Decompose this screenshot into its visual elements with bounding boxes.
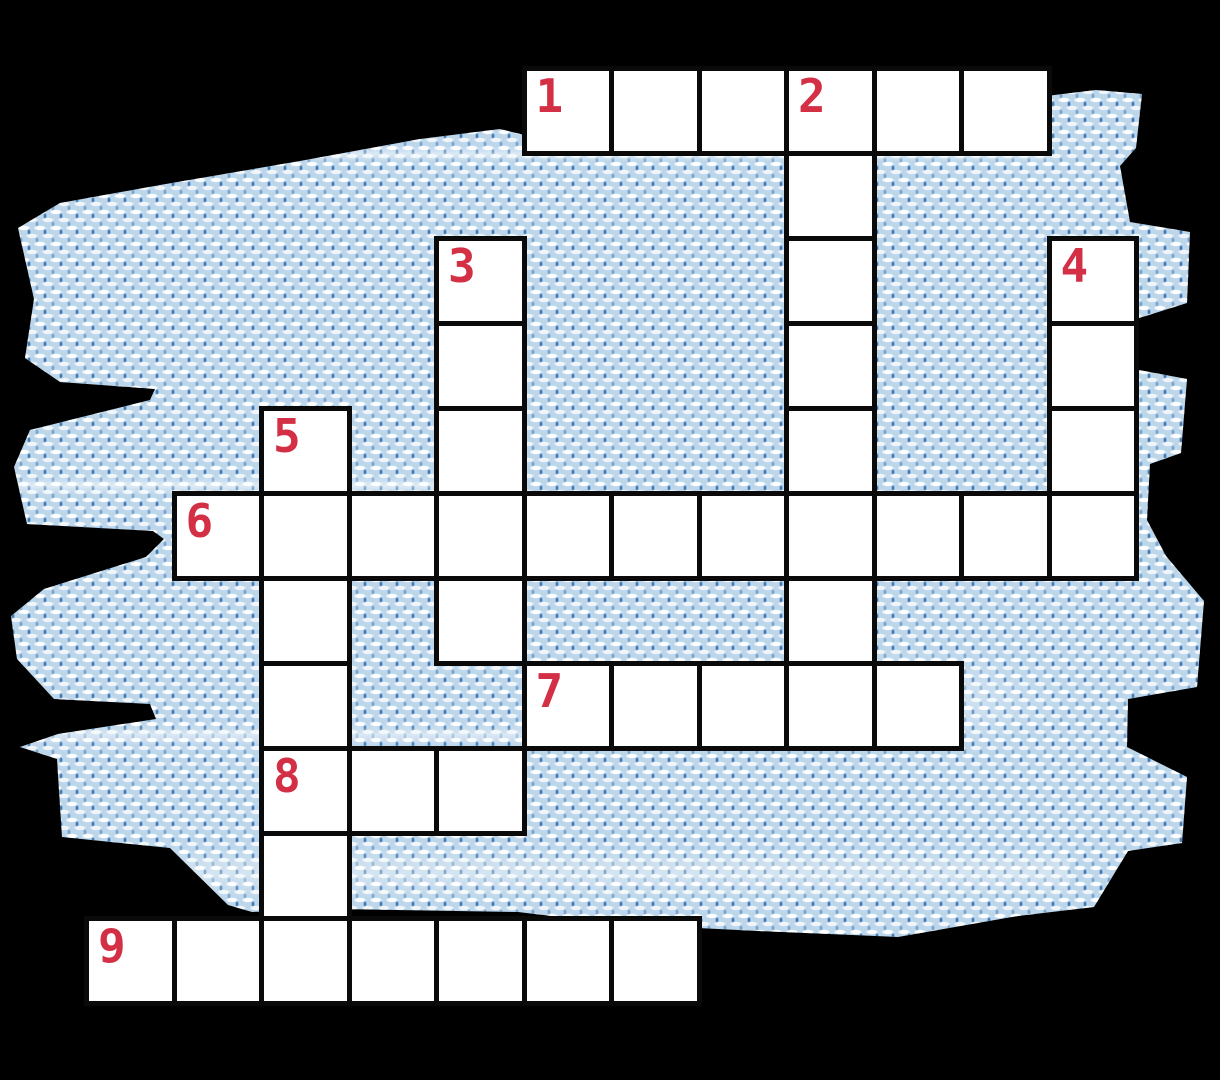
crossword-cell[interactable] <box>434 746 527 836</box>
clue-number-4: 4 <box>1061 245 1089 289</box>
crossword-cell[interactable] <box>872 491 965 581</box>
crossword-cell[interactable] <box>434 321 527 411</box>
crossword-cell[interactable] <box>784 236 877 326</box>
clue-number-1: 1 <box>536 75 564 119</box>
crossword-cell[interactable] <box>522 491 615 581</box>
crossword-cell[interactable] <box>1047 491 1140 581</box>
clue-number-3: 3 <box>448 245 476 289</box>
crossword-cell[interactable] <box>259 916 352 1006</box>
crossword-cell[interactable] <box>697 661 790 751</box>
crossword-cell[interactable] <box>434 576 527 666</box>
crossword-cell[interactable] <box>784 576 877 666</box>
crossword-cell[interactable] <box>609 661 702 751</box>
crossword-cell[interactable] <box>1047 406 1140 496</box>
crossword-cell[interactable] <box>784 491 877 581</box>
crossword-cell[interactable] <box>259 576 352 666</box>
crossword-cell[interactable] <box>259 491 352 581</box>
clue-number-8: 8 <box>273 755 301 799</box>
clue-number-2: 2 <box>798 75 826 119</box>
crossword-cell[interactable] <box>522 916 615 1006</box>
crossword-cell[interactable] <box>697 66 790 156</box>
crossword-cell[interactable] <box>697 491 790 581</box>
crossword-cell[interactable] <box>609 66 702 156</box>
crossword-cell[interactable] <box>172 916 265 1006</box>
crossword-cell[interactable] <box>347 916 440 1006</box>
clue-number-5: 5 <box>273 415 301 459</box>
crossword-cell[interactable] <box>434 491 527 581</box>
clue-number-7: 7 <box>536 670 564 714</box>
crossword-cell[interactable] <box>434 916 527 1006</box>
crossword-cell[interactable] <box>784 661 877 751</box>
crossword-cell[interactable] <box>347 746 440 836</box>
clue-number-6: 6 <box>186 500 214 544</box>
crossword-cell[interactable] <box>347 491 440 581</box>
clue-number-9: 9 <box>98 925 126 969</box>
crossword-cell[interactable] <box>1047 321 1140 411</box>
crossword-cell[interactable] <box>609 491 702 581</box>
crossword-cell[interactable] <box>609 916 702 1006</box>
crossword-cell[interactable] <box>959 66 1052 156</box>
crossword-cell[interactable] <box>872 66 965 156</box>
crossword-cell[interactable] <box>784 321 877 411</box>
crossword-cell[interactable] <box>259 831 352 921</box>
crossword-cell[interactable] <box>784 151 877 241</box>
crossword-cell[interactable] <box>872 661 965 751</box>
crossword-cell[interactable] <box>259 661 352 751</box>
crossword-board: 123456789 <box>0 0 1220 1080</box>
crossword-cell[interactable] <box>434 406 527 496</box>
crossword-cell[interactable] <box>784 406 877 496</box>
crossword-cell[interactable] <box>959 491 1052 581</box>
